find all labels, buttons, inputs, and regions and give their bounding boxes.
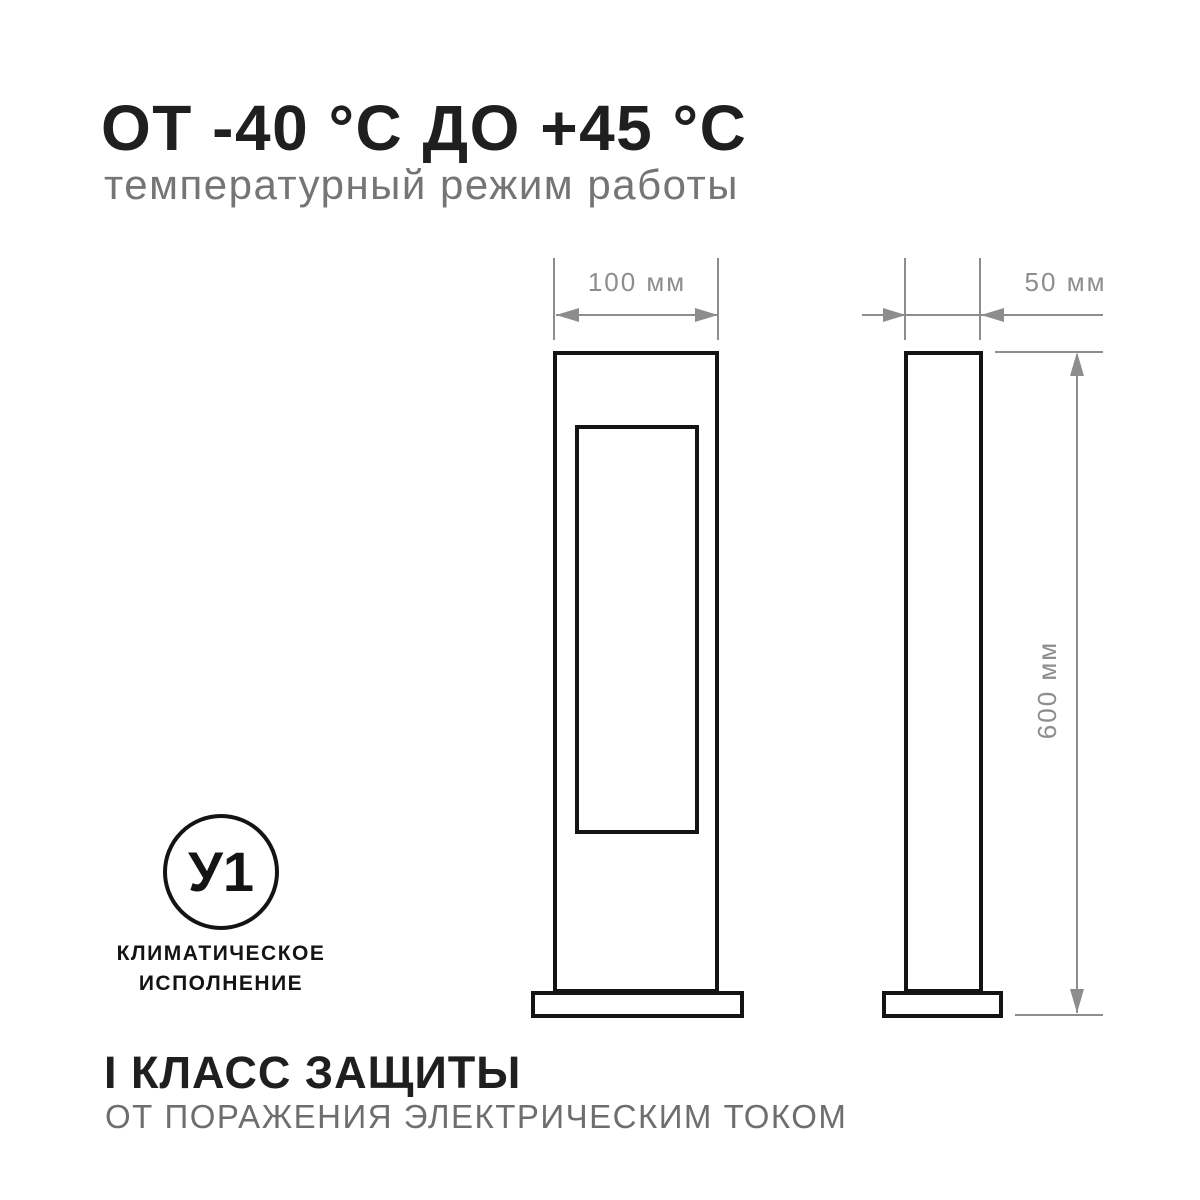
side-view-base-outline: [882, 991, 1003, 1018]
protection-class-subtitle: ОТ ПОРАЖЕНИЯ ЭЛЕКТРИЧЕСКИМ ТОКОМ: [105, 1100, 847, 1133]
climate-badge-code: У1: [188, 844, 254, 900]
temperature-range-subtitle: температурный режим работы: [104, 164, 739, 206]
front-width-arrow-right-icon: [695, 308, 718, 322]
height-dimension-line: [1076, 355, 1078, 1013]
front-width-dimension-line: [556, 314, 718, 316]
climate-badge-caption-line2: ИСПОЛНЕНИЕ: [85, 969, 357, 999]
front-view-light-panel-outline: [575, 425, 699, 834]
side-width-extension-line-right: [979, 258, 981, 340]
height-label: 600 мм: [1034, 625, 1060, 755]
temperature-range-title: ОТ -40 °С ДО +45 °С: [101, 96, 747, 160]
side-width-label: 50 мм: [1018, 269, 1113, 295]
side-view-body-outline: [904, 351, 983, 993]
protection-class-title: I КЛАСС ЗАЩИТЫ: [104, 1050, 521, 1095]
height-arrow-up-icon: [1070, 352, 1084, 376]
climate-badge-caption-line1: КЛИМАТИЧЕСКОЕ: [85, 939, 357, 969]
side-width-arrow-left-icon: [981, 308, 1004, 322]
height-arrow-down-icon: [1070, 989, 1084, 1013]
front-width-arrow-left-icon: [556, 308, 579, 322]
front-width-label: 100 мм: [547, 269, 727, 295]
side-width-arrow-right-icon: [883, 308, 906, 322]
front-view-base-outline: [531, 991, 744, 1018]
height-extension-line-bottom: [1015, 1014, 1103, 1016]
side-width-extension-line-left: [904, 258, 906, 340]
climate-badge-circle: У1: [163, 814, 279, 930]
climate-badge-caption: КЛИМАТИЧЕСКОЕ ИСПОЛНЕНИЕ: [85, 939, 357, 999]
product-spec-infographic: ОТ -40 °С ДО +45 °С температурный режим …: [0, 0, 1200, 1200]
height-extension-line-top: [995, 351, 1103, 353]
